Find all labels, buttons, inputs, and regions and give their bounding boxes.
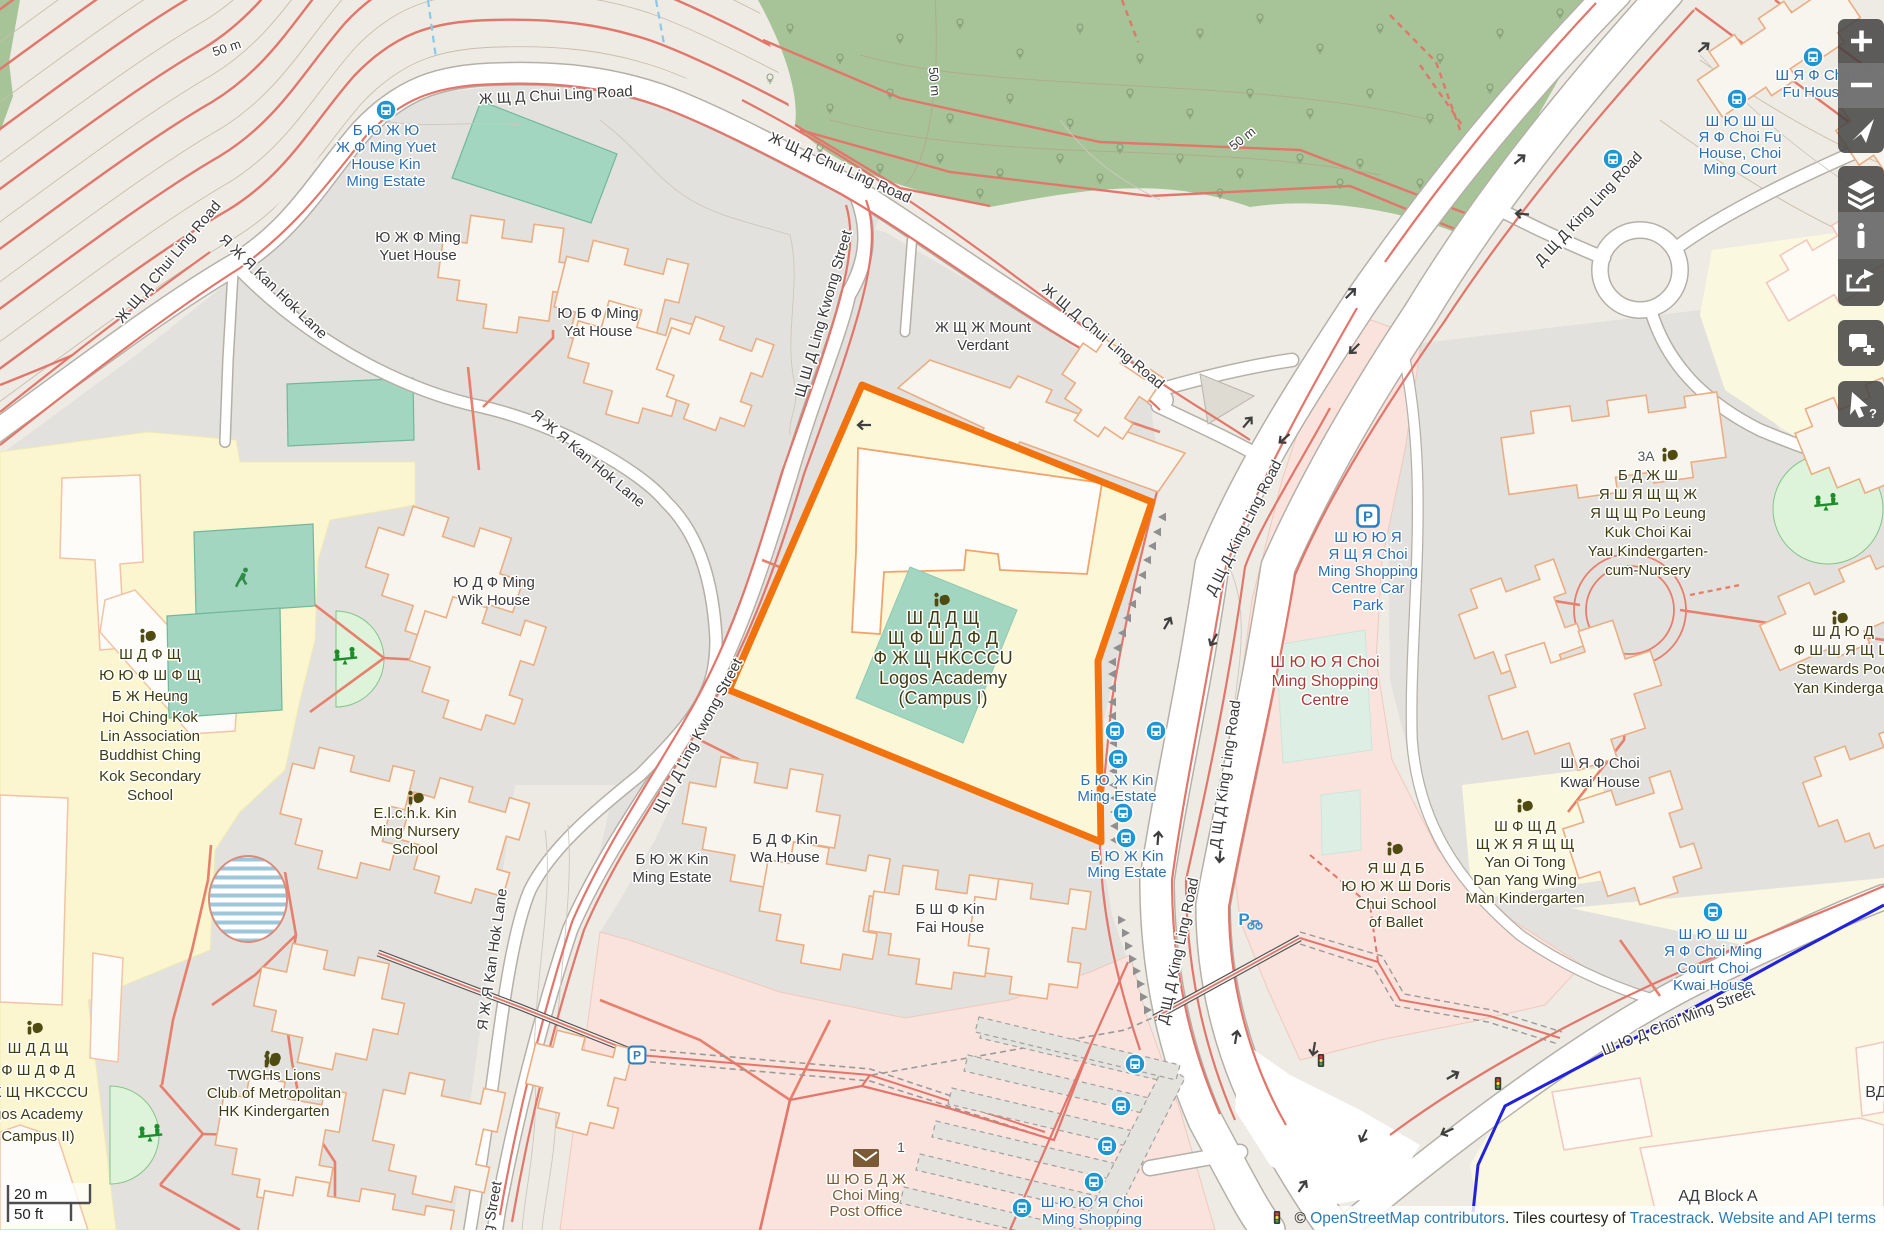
svg-text:AД Block A: AД Block A	[1678, 1188, 1758, 1205]
svg-text:Б Д Ф KinWa House: Б Д Ф KinWa House	[750, 831, 819, 866]
svg-text:Ш Ю Б Д ЖChoi MingPost Office: Ш Ю Б Д ЖChoi MingPost Office	[826, 1171, 906, 1220]
svg-text:Б Ш Ф KinFai House: Б Ш Ф KinFai House	[915, 901, 984, 936]
svg-text:Ю Б Ф MingYat House: Ю Б Ф MingYat House	[557, 305, 638, 340]
svg-text:?: ?	[1869, 406, 1877, 421]
svg-text:50 m: 50 m	[926, 67, 943, 97]
svg-text:3A: 3A	[1637, 448, 1655, 464]
svg-text:Ш Ю Ю Я ChoiMing Shopping: Ш Ю Ю Я ChoiMing Shopping	[1041, 1194, 1143, 1228]
svg-text:BД: BД	[1865, 1084, 1884, 1101]
svg-text:Б Ю Ж KinMing Estate: Б Ю Ж KinMing Estate	[632, 851, 711, 886]
svg-text:Ш Д Ф ЩЮ Ю Ф Ш Ф ЩБ Ж HeungHoi: Ш Д Ф ЩЮ Ю Ф Ш Ф ЩБ Ж HeungHoi Ching Kok…	[99, 646, 201, 804]
svg-text:50 ft: 50 ft	[14, 1206, 44, 1223]
svg-text:20 m: 20 m	[14, 1186, 47, 1203]
svg-text:Ш Ю Ш ШЯ Ф Choi MingCourt Choi: Ш Ю Ш ШЯ Ф Choi MingCourt ChoiKwai House	[1664, 926, 1762, 994]
svg-text:Ю Д Ф MingWik House: Ю Д Ф MingWik House	[453, 574, 535, 609]
svg-text:P: P	[633, 1048, 641, 1062]
svg-text:1: 1	[897, 1139, 905, 1155]
svg-text:© OpenStreetMap contributors.: © OpenStreetMap contributors. Tiles cour…	[1295, 1210, 1877, 1227]
svg-text:Ю Ж Ф MingYuet House: Ю Ж Ф MingYuet House	[375, 229, 460, 264]
svg-text:Б Ю Ж KinMing Estate: Б Ю Ж KinMing Estate	[1087, 848, 1166, 881]
svg-text:Ш Ю Ш ШЯ Ф Choi FuHouse, ChoiM: Ш Ю Ш ШЯ Ф Choi FuHouse, ChoiMing Court	[1698, 113, 1781, 178]
svg-text:Б Ю Ж KinMing Estate: Б Ю Ж KinMing Estate	[1077, 772, 1156, 805]
svg-text:P: P	[1363, 509, 1373, 526]
